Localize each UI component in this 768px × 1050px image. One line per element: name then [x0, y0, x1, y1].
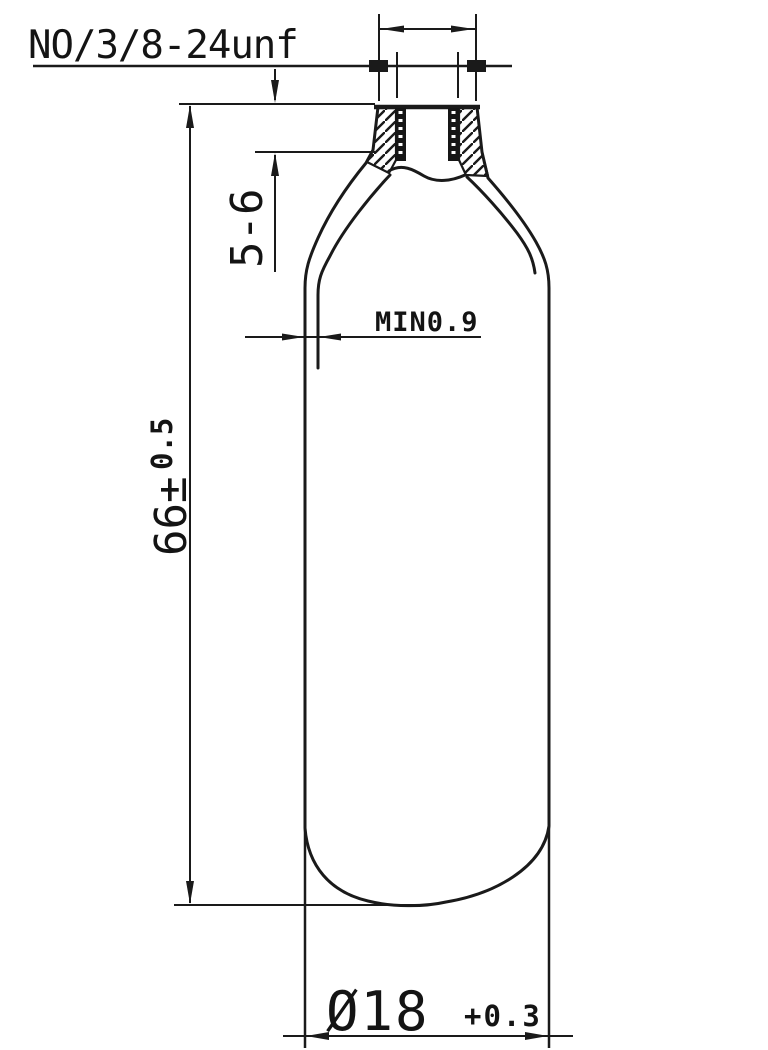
arrow-top [186, 105, 194, 128]
neck-inner-bottom-line [389, 167, 465, 180]
neck-length-label: 5-6 [222, 189, 273, 268]
diameter-value-label: Ø18 [326, 980, 430, 1043]
cylinder-drawing: NO/3/8-24unf 5-6 66± 0.5 MIN0.9 Ø18 [0, 0, 768, 1050]
thread-spec-label: NO/3/8-24unf [28, 23, 298, 68]
arrow-left [381, 26, 404, 33]
arrow-right-tip [282, 334, 304, 341]
neck-wall-left-hatch [367, 108, 396, 173]
arrow-down [271, 80, 279, 103]
dim-thread-od [379, 14, 476, 101]
wall-thickness-label: MIN0.9 [375, 307, 479, 338]
diameter-tolerance-label: +0.3 [464, 999, 542, 1033]
dim-neck-length: 5-6 [179, 69, 375, 272]
inner-wall-left [318, 175, 390, 368]
leader-thread-spec: NO/3/8-24unf [28, 23, 512, 72]
cylinder-body [305, 107, 549, 906]
neck-wall-right-hatch [459, 108, 488, 176]
arrow-bottom [186, 881, 194, 904]
dim-diameter: Ø18 +0.3 [283, 826, 573, 1048]
arrow-up [271, 153, 279, 176]
leader-marker-left [369, 60, 388, 72]
arrow-right [451, 26, 474, 33]
neck-thread-section [367, 108, 488, 176]
dim-wall-thickness: MIN0.9 [245, 307, 481, 341]
arrow-left-tip [319, 334, 341, 341]
height-tolerance-label: 0.5 [145, 418, 179, 470]
technical-drawing-page: NO/3/8-24unf 5-6 66± 0.5 MIN0.9 Ø18 [0, 0, 768, 1050]
leader-marker-right [467, 60, 486, 72]
arrow-right [525, 1032, 548, 1040]
height-value-label: 66± [146, 477, 197, 556]
dim-overall-height: 66± 0.5 [145, 105, 419, 905]
